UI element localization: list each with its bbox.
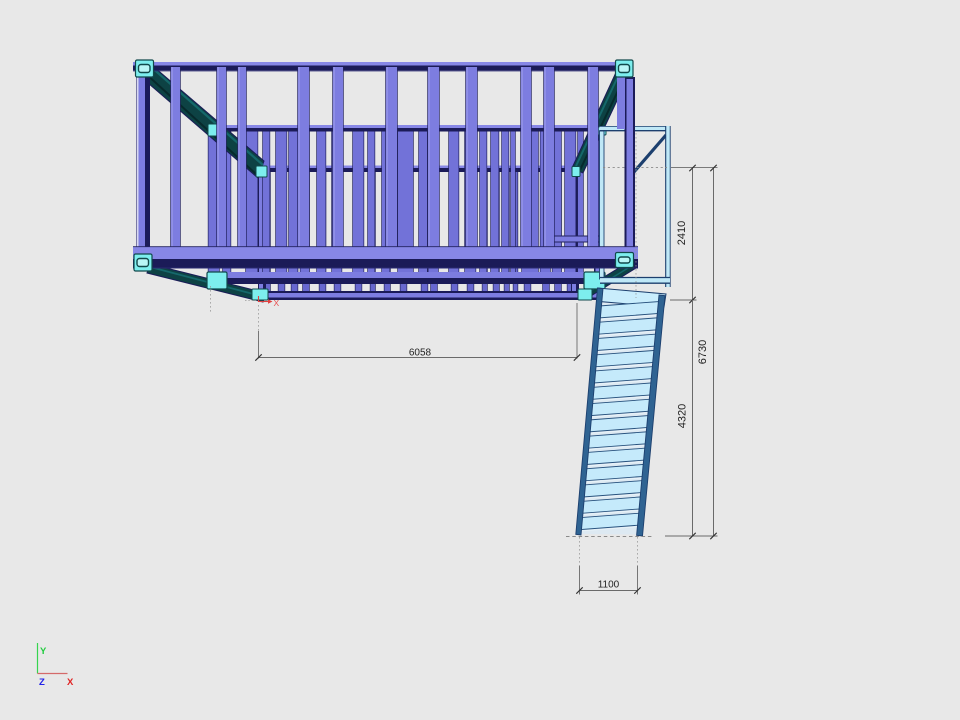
svg-text:6730: 6730 [697, 340, 709, 364]
svg-text:Z: Z [39, 677, 45, 688]
svg-text:Y: Y [40, 646, 47, 657]
svg-text:2410: 2410 [676, 221, 688, 245]
svg-text:X: X [274, 298, 280, 308]
svg-text:X: X [67, 677, 74, 688]
svg-text:4320: 4320 [677, 404, 689, 428]
svg-text:1100: 1100 [598, 580, 620, 591]
svg-text:6058: 6058 [409, 348, 432, 359]
